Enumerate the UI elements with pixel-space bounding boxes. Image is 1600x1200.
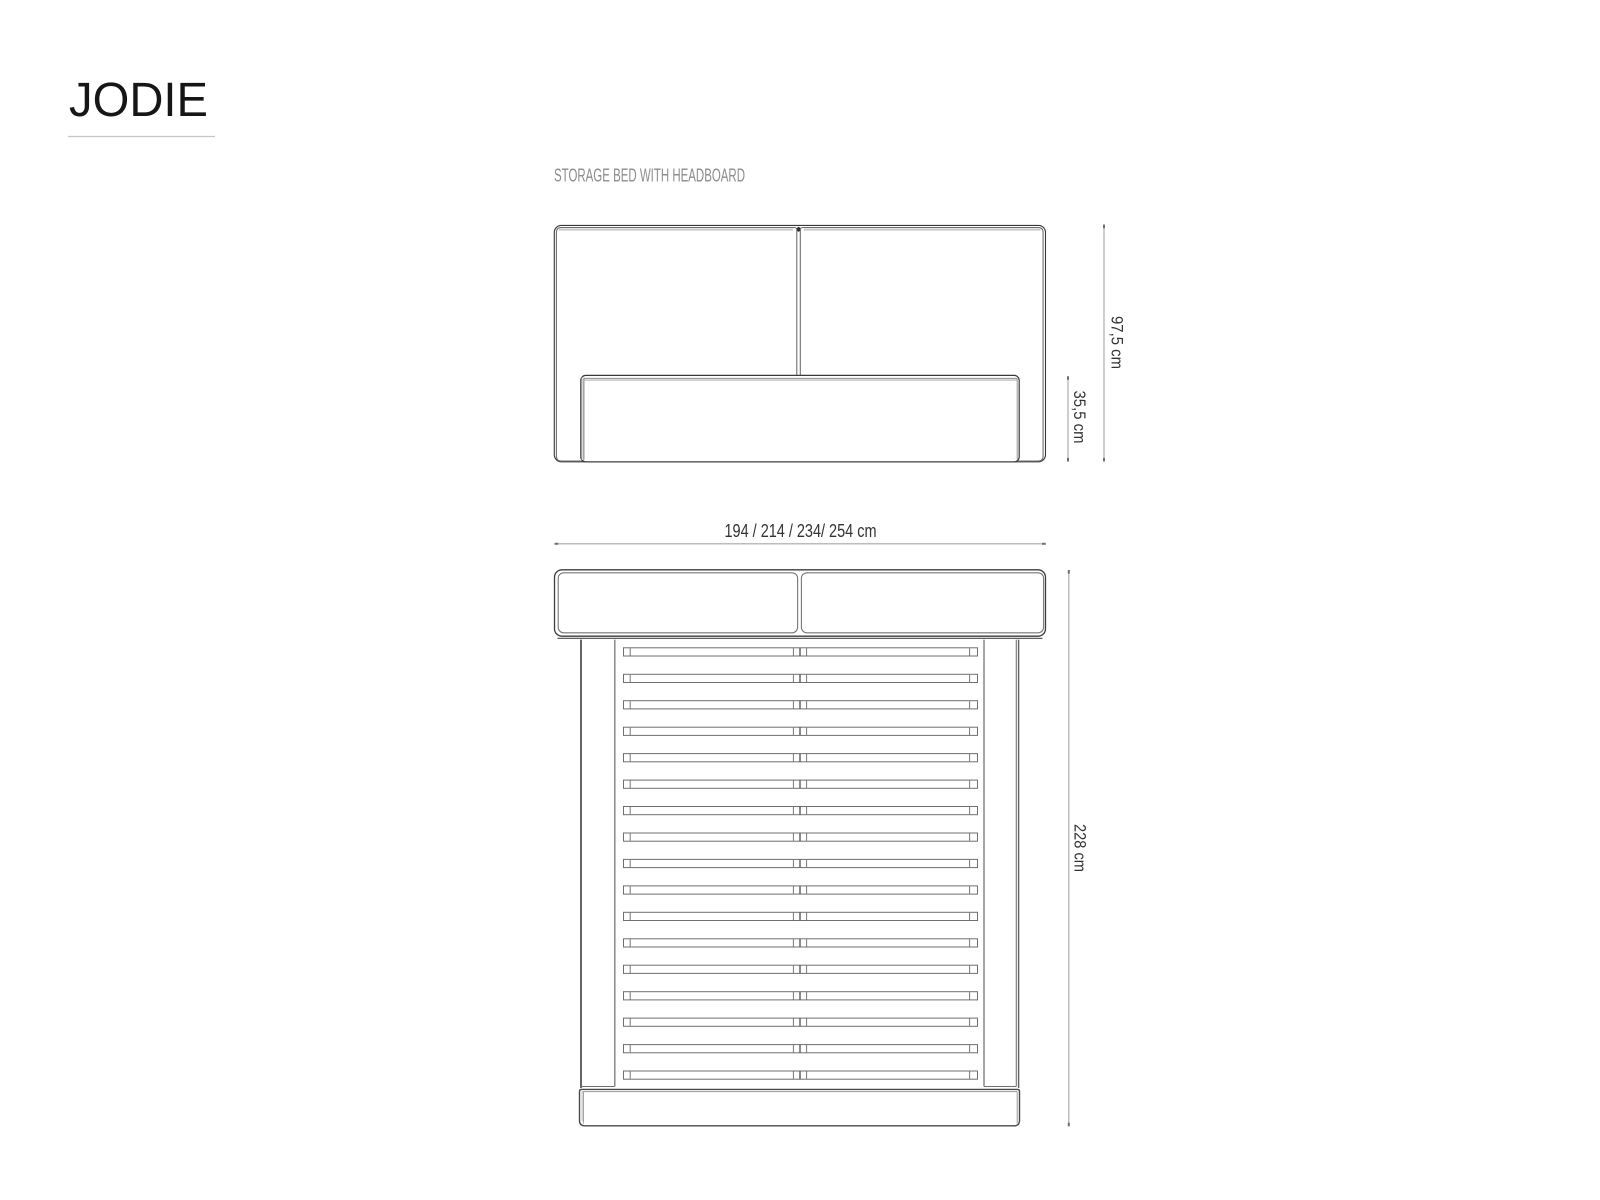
svg-text:97,5 cm: 97,5 cm bbox=[1108, 316, 1127, 369]
svg-text:JODIE: JODIE bbox=[69, 73, 208, 127]
svg-text:194 / 214 / 234/ 254 cm: 194 / 214 / 234/ 254 cm bbox=[725, 521, 877, 541]
svg-text:228 cm: 228 cm bbox=[1071, 824, 1090, 872]
svg-text:35,5 cm: 35,5 cm bbox=[1070, 391, 1089, 444]
svg-text:STORAGE BED WITH HEADBOARD: STORAGE BED WITH HEADBOARD bbox=[554, 166, 745, 186]
